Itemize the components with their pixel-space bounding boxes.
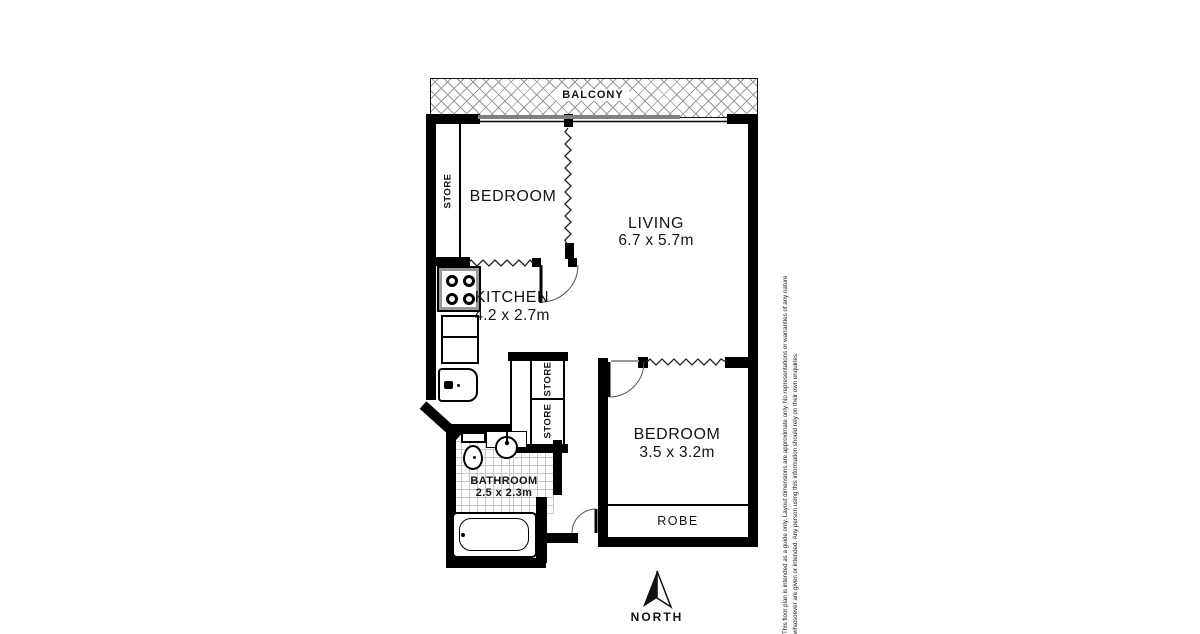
disclaimer-text: This floor plan is intended as a guide o… bbox=[781, 248, 803, 634]
bedroom2-label: BEDROOM bbox=[634, 426, 721, 444]
closet-partition-line bbox=[530, 360, 532, 445]
store-partition-line bbox=[459, 124, 461, 258]
closet-partition-line bbox=[563, 360, 565, 446]
disclaimer-line1: This floor plan is intended as a guide o… bbox=[781, 248, 791, 634]
wall bbox=[565, 243, 574, 259]
store-top-left-label: STORE bbox=[443, 173, 454, 208]
north-arrow-icon bbox=[643, 571, 671, 607]
wall bbox=[508, 352, 568, 361]
robe-line bbox=[608, 504, 748, 506]
living-dims: 6.7 x 5.7m bbox=[618, 232, 693, 250]
bedroom1-label: BEDROOM bbox=[470, 188, 557, 206]
wall bbox=[725, 357, 750, 368]
basin-icon bbox=[495, 436, 518, 459]
north-label: NORTH bbox=[631, 610, 684, 624]
toilet-icon bbox=[463, 445, 483, 470]
wall bbox=[598, 537, 758, 547]
bathroom-dims: 2.5 x 2.3m bbox=[476, 487, 533, 499]
floorplan-page: BALCONY STORE BEDROOM LIVING 6.7 x 5.7m … bbox=[0, 0, 1200, 634]
wall bbox=[748, 114, 758, 547]
closet-shelf-line bbox=[530, 398, 565, 400]
wall bbox=[568, 258, 577, 267]
zigzag-partition bbox=[647, 359, 726, 365]
wall bbox=[564, 114, 573, 127]
wall bbox=[436, 257, 470, 266]
kitchen-label: KITCHEN bbox=[475, 289, 549, 307]
closet-partition-line bbox=[510, 360, 512, 426]
toilet-cistern-icon bbox=[461, 432, 486, 443]
wall bbox=[547, 533, 578, 543]
bedroom2-dims: 3.5 x 3.2m bbox=[639, 444, 714, 462]
balcony-label: BALCONY bbox=[556, 89, 629, 101]
bathroom-label: BATHROOM bbox=[470, 475, 537, 487]
wall bbox=[426, 114, 436, 400]
wall bbox=[536, 497, 547, 563]
store-mid-upper-label: STORE bbox=[543, 361, 554, 396]
store-mid-lower-label: STORE bbox=[543, 403, 554, 438]
wall bbox=[598, 358, 608, 547]
wall bbox=[532, 258, 541, 267]
robe-label: ROBE bbox=[657, 514, 698, 528]
sink-icon bbox=[438, 368, 478, 402]
wall bbox=[446, 558, 546, 568]
bath-tap-icon bbox=[461, 533, 465, 537]
kitchen-dims: 4.2 x 2.7m bbox=[474, 307, 549, 325]
living-label: LIVING bbox=[628, 215, 684, 233]
fridge-icon bbox=[441, 315, 479, 364]
disclaimer-line2: whatsoever are given or intended. Any pe… bbox=[791, 248, 801, 634]
bathtub-inner bbox=[459, 518, 529, 551]
zigzag-partition bbox=[565, 128, 571, 246]
wall bbox=[638, 357, 648, 368]
door-arc bbox=[572, 509, 596, 533]
